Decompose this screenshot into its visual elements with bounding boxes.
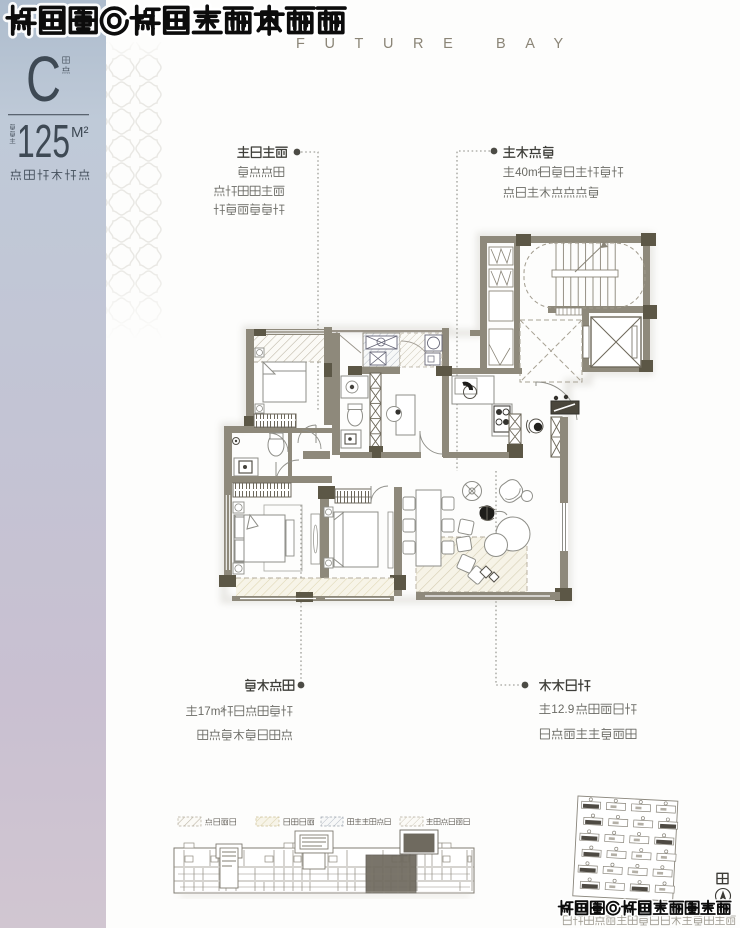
svg-text:C: C (26, 43, 61, 115)
svg-text:125: 125 (17, 115, 70, 167)
svg-text:FUTURE BAY: FUTURE BAY (296, 36, 583, 52)
svg-text:12.9: 12.9 (551, 702, 574, 716)
svg-text:40m²: 40m² (515, 166, 542, 179)
svg-text:M²: M² (71, 124, 89, 141)
svg-text:17m²: 17m² (198, 705, 225, 718)
